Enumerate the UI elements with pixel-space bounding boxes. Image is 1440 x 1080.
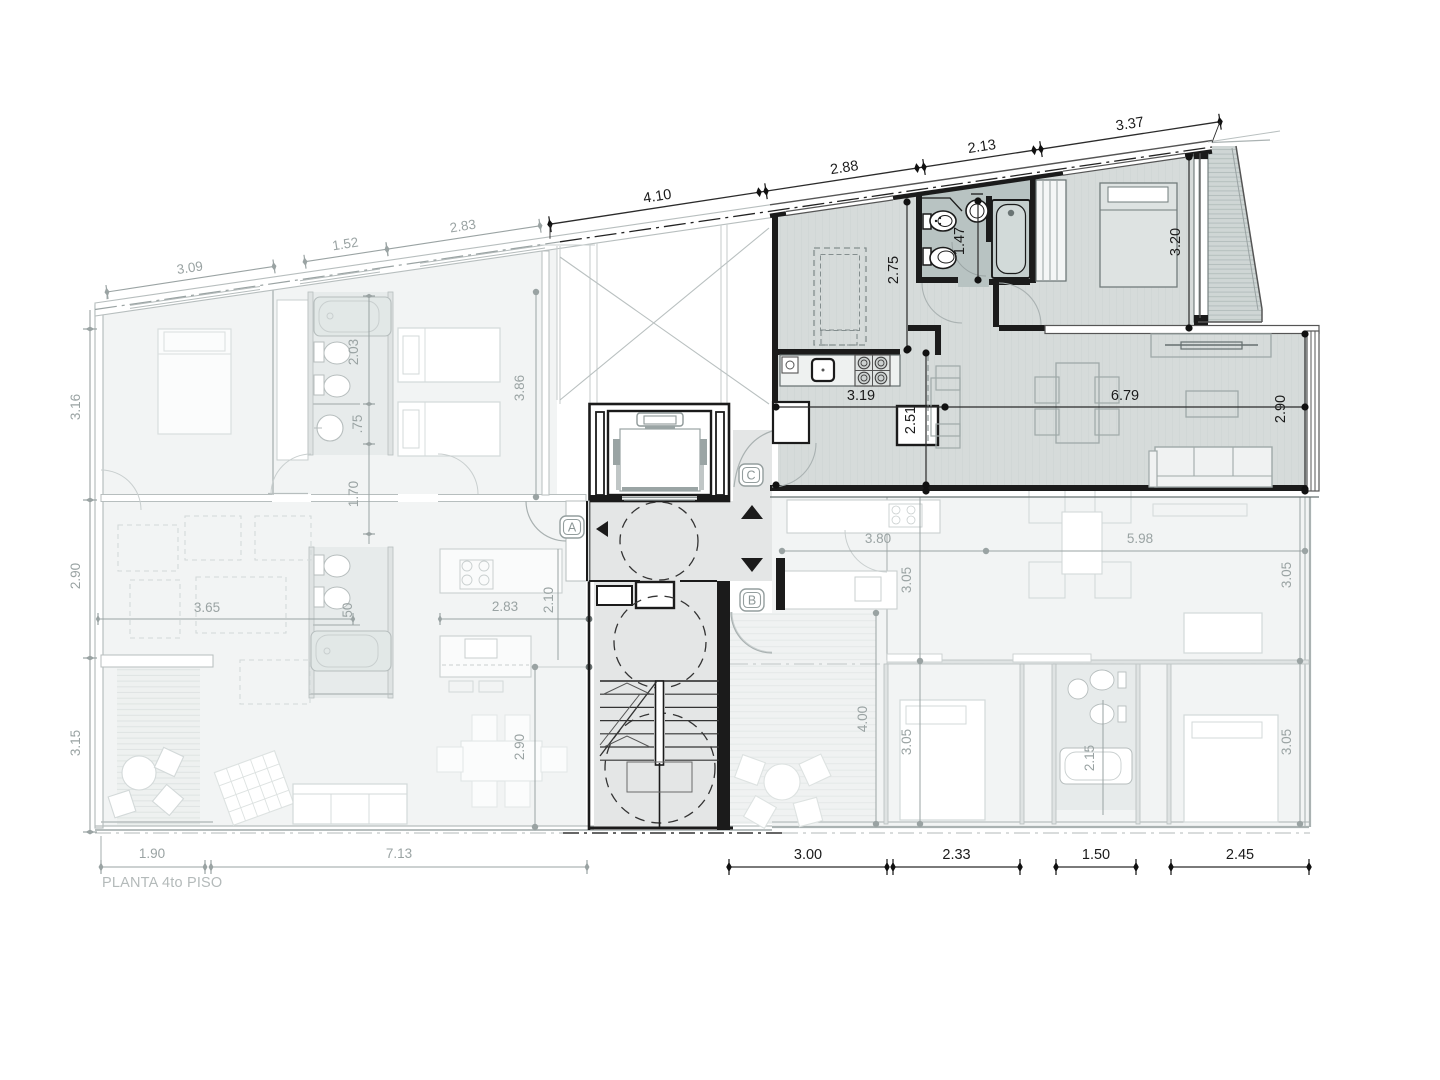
svg-text:.50: .50 — [340, 603, 355, 622]
svg-text:1.70: 1.70 — [346, 481, 361, 507]
svg-text:3.05: 3.05 — [899, 729, 914, 755]
svg-text:PLANTA 4to PISO: PLANTA 4to PISO — [102, 875, 222, 891]
svg-text:2.10: 2.10 — [541, 587, 556, 613]
svg-text:3.05: 3.05 — [899, 567, 914, 593]
svg-text:3.16: 3.16 — [68, 394, 83, 420]
svg-text:3.05: 3.05 — [1279, 729, 1294, 755]
svg-text:4.00: 4.00 — [855, 706, 870, 732]
svg-text:3.05: 3.05 — [1279, 562, 1294, 588]
svg-text:C: C — [746, 469, 755, 483]
svg-text:.75: .75 — [350, 415, 365, 434]
svg-text:1.90: 1.90 — [139, 846, 165, 861]
svg-text:2.75: 2.75 — [886, 256, 902, 284]
svg-text:A: A — [568, 521, 577, 535]
svg-text:2.90: 2.90 — [68, 563, 83, 589]
svg-text:2.45: 2.45 — [1226, 847, 1254, 863]
svg-text:3.15: 3.15 — [68, 730, 83, 756]
svg-text:2.83: 2.83 — [492, 599, 518, 614]
svg-text:2.15: 2.15 — [1082, 745, 1097, 771]
svg-text:2.90: 2.90 — [1273, 395, 1289, 423]
svg-text:2.51: 2.51 — [903, 406, 919, 434]
svg-text:1.50: 1.50 — [1082, 847, 1110, 863]
svg-text:2.90: 2.90 — [512, 734, 527, 760]
svg-text:2.33: 2.33 — [942, 847, 970, 863]
svg-text:3.00: 3.00 — [794, 847, 822, 863]
svg-text:3.20: 3.20 — [1168, 228, 1184, 256]
svg-text:5.98: 5.98 — [1127, 531, 1153, 546]
svg-text:3.86: 3.86 — [512, 375, 527, 401]
svg-text:1.47: 1.47 — [952, 227, 968, 255]
svg-text:7.13: 7.13 — [386, 846, 412, 861]
svg-text:3.65: 3.65 — [194, 600, 220, 615]
svg-text:3.19: 3.19 — [847, 388, 875, 404]
svg-text:B: B — [748, 594, 756, 608]
svg-text:6.79: 6.79 — [1111, 388, 1139, 404]
svg-text:3.80: 3.80 — [865, 531, 891, 546]
svg-text:2.03: 2.03 — [346, 339, 361, 365]
